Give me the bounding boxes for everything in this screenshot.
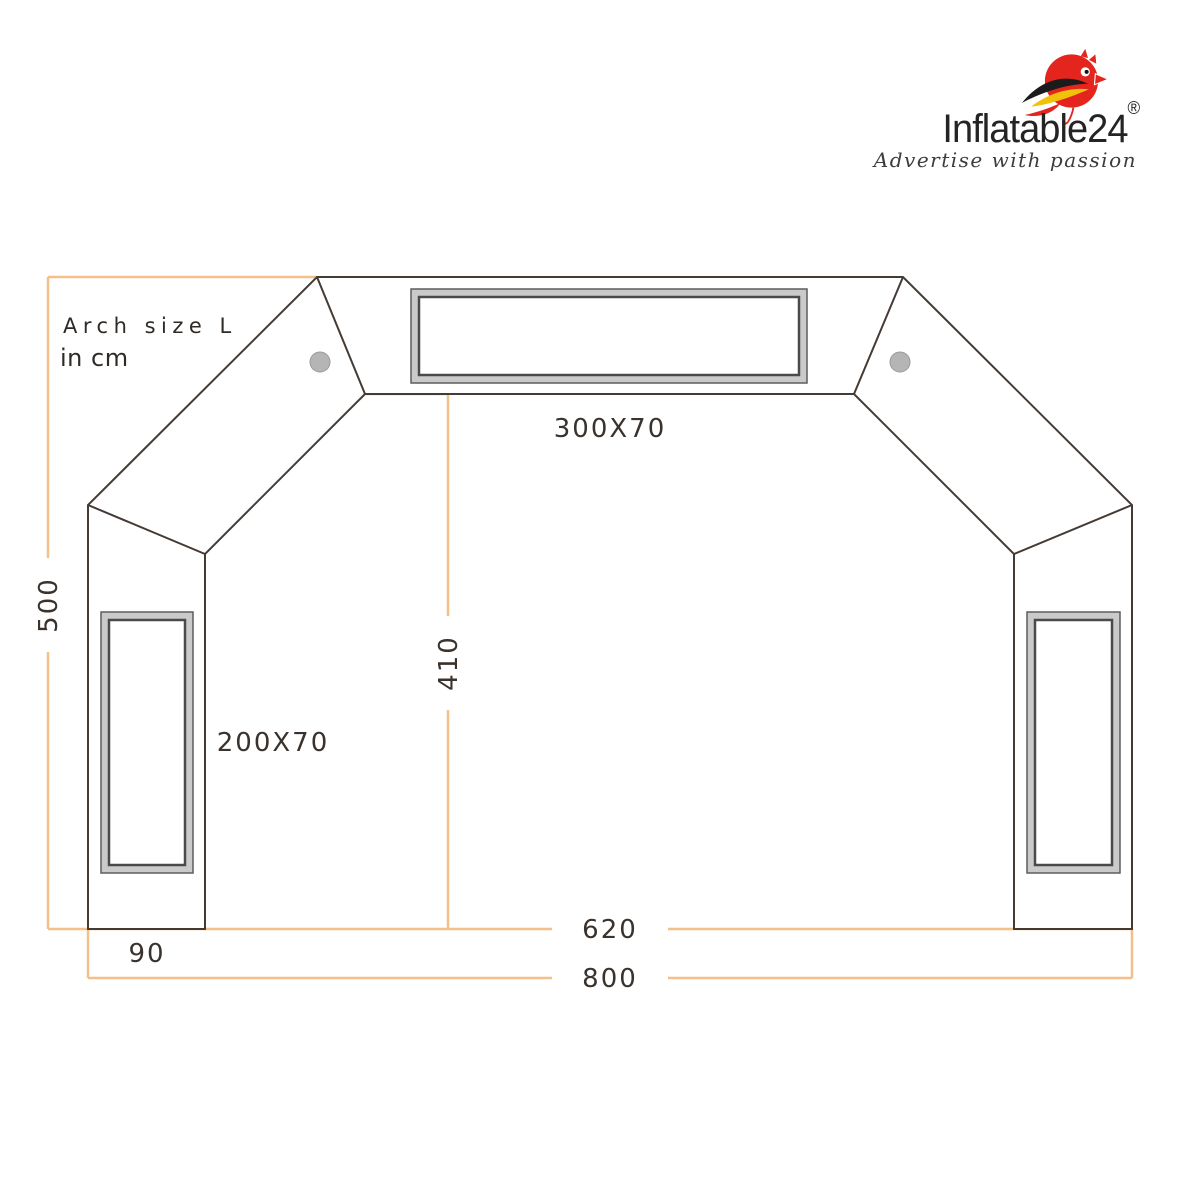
page: Arch size L in cm 300X70 200X70 500 410 … bbox=[0, 0, 1200, 1200]
top-banner-area bbox=[419, 297, 799, 375]
right-banner-panel bbox=[1027, 612, 1120, 873]
vent-right-icon bbox=[890, 352, 910, 372]
label-total-width: 800 bbox=[582, 964, 638, 994]
label-inner-height: 410 bbox=[434, 635, 464, 691]
label-inner-width: 620 bbox=[582, 915, 638, 945]
brand-name-row: Inflatable24® bbox=[942, 98, 1140, 152]
brand-tagline: Advertise with passion bbox=[874, 148, 1137, 172]
label-side-banner-size: 200X70 bbox=[217, 728, 330, 758]
brand-logo: Inflatable24® Advertise with passion bbox=[900, 40, 1145, 180]
label-top-banner-size: 300X70 bbox=[554, 414, 667, 444]
top-banner-panel bbox=[411, 289, 807, 383]
registered-mark: ® bbox=[1127, 98, 1140, 118]
right-banner-area bbox=[1035, 620, 1112, 865]
diagram-unit: in cm bbox=[60, 344, 129, 372]
diagram-title: Arch size L bbox=[63, 314, 237, 338]
left-banner-panel bbox=[101, 612, 193, 873]
label-leg-width: 90 bbox=[128, 939, 165, 969]
label-total-height: 500 bbox=[34, 577, 64, 633]
left-banner-area bbox=[109, 620, 185, 865]
vent-left-icon bbox=[310, 352, 330, 372]
arch-dimension-diagram: Arch size L in cm 300X70 200X70 500 410 … bbox=[0, 0, 1200, 1200]
brand-name: Inflatable24 bbox=[942, 107, 1127, 151]
